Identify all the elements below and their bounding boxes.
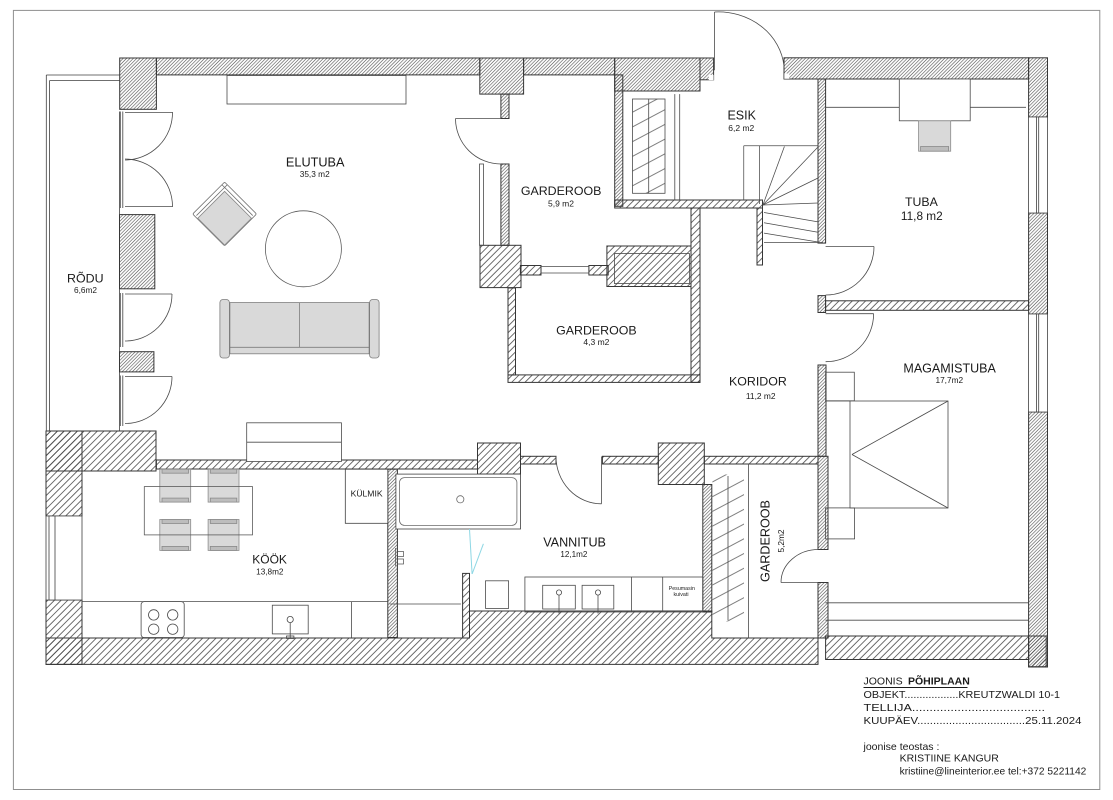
svg-text:11,8 m2: 11,8 m2	[901, 209, 943, 223]
svg-text:12,1m2: 12,1m2	[560, 550, 587, 559]
svg-text:17,7m2: 17,7m2	[935, 375, 963, 385]
svg-text:5,2m2: 5,2m2	[776, 529, 786, 552]
svg-text:4,3 m2: 4,3 m2	[583, 337, 609, 347]
svg-text:13,8m2: 13,8m2	[256, 568, 284, 577]
svg-text:TELLIJA.......................: TELLIJA.................................…	[864, 702, 1046, 714]
svg-text:KUUPÄEV.......................: KUUPÄEV.................................…	[864, 715, 1082, 727]
svg-text:VANNITUB: VANNITUB	[543, 536, 606, 550]
svg-text:TUBA: TUBA	[905, 195, 939, 209]
svg-text:KORIDOR: KORIDOR	[729, 375, 787, 389]
svg-text:ESIK: ESIK	[727, 109, 756, 123]
svg-text:11,2 m2: 11,2 m2	[746, 391, 776, 401]
svg-text:kuivati: kuivati	[673, 592, 688, 598]
svg-text:35,3 m2: 35,3 m2	[300, 169, 330, 179]
svg-text:ELUTUBA: ELUTUBA	[286, 156, 345, 170]
svg-text:KRISTIINE KANGUR: KRISTIINE KANGUR	[900, 753, 1000, 765]
svg-text:MAGAMISTUBA: MAGAMISTUBA	[903, 361, 996, 375]
svg-text:KÖÖK: KÖÖK	[252, 553, 287, 567]
svg-text:PÕHIPLAAN: PÕHIPLAAN	[908, 675, 970, 688]
svg-text:KÜLMIK: KÜLMIK	[351, 489, 383, 499]
svg-text:joonise teostas :: joonise teostas :	[863, 741, 940, 753]
svg-text:GARDEROOB: GARDEROOB	[758, 500, 772, 582]
svg-text:GARDEROOB: GARDEROOB	[521, 184, 602, 198]
svg-text:OBJEKT..................KREUTZ: OBJEKT..................KREUTZWALDI 10-1	[864, 689, 1061, 701]
svg-text:JOONIS: JOONIS	[864, 676, 903, 688]
svg-text:kristiine@lineinterior.ee tel: kristiine@lineinterior.ee tel:+372 52211…	[900, 766, 1087, 778]
svg-text:5,9 m2: 5,9 m2	[548, 198, 574, 208]
svg-text:6,2 m2: 6,2 m2	[728, 123, 754, 133]
svg-text:6,6m2: 6,6m2	[74, 285, 97, 295]
svg-text:RÕDU: RÕDU	[67, 271, 103, 286]
svg-text:GARDEROOB: GARDEROOB	[556, 324, 637, 338]
